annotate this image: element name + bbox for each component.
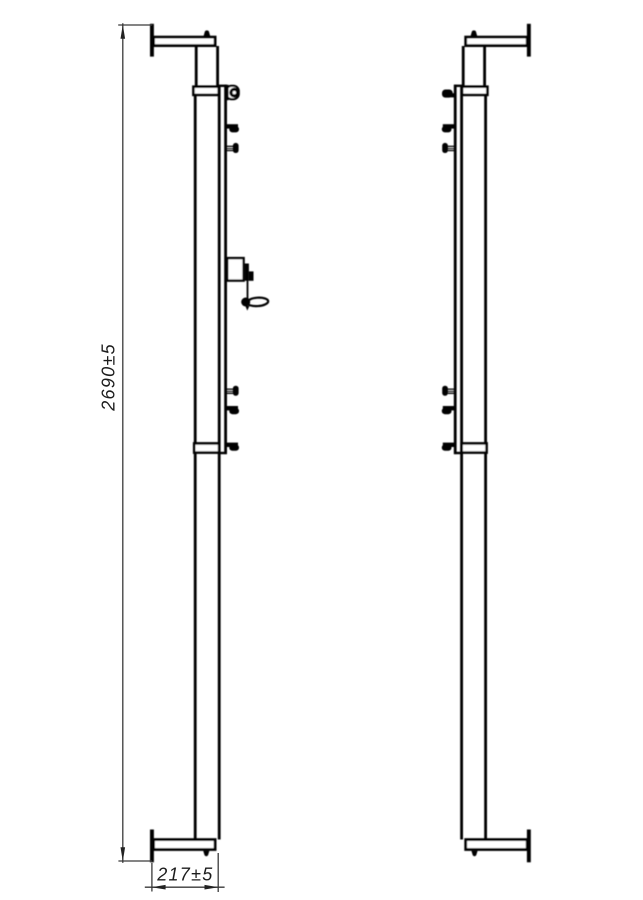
svg-text:217±5: 217±5 — [156, 865, 213, 885]
svg-text:2690±5: 2690±5 — [99, 343, 119, 412]
